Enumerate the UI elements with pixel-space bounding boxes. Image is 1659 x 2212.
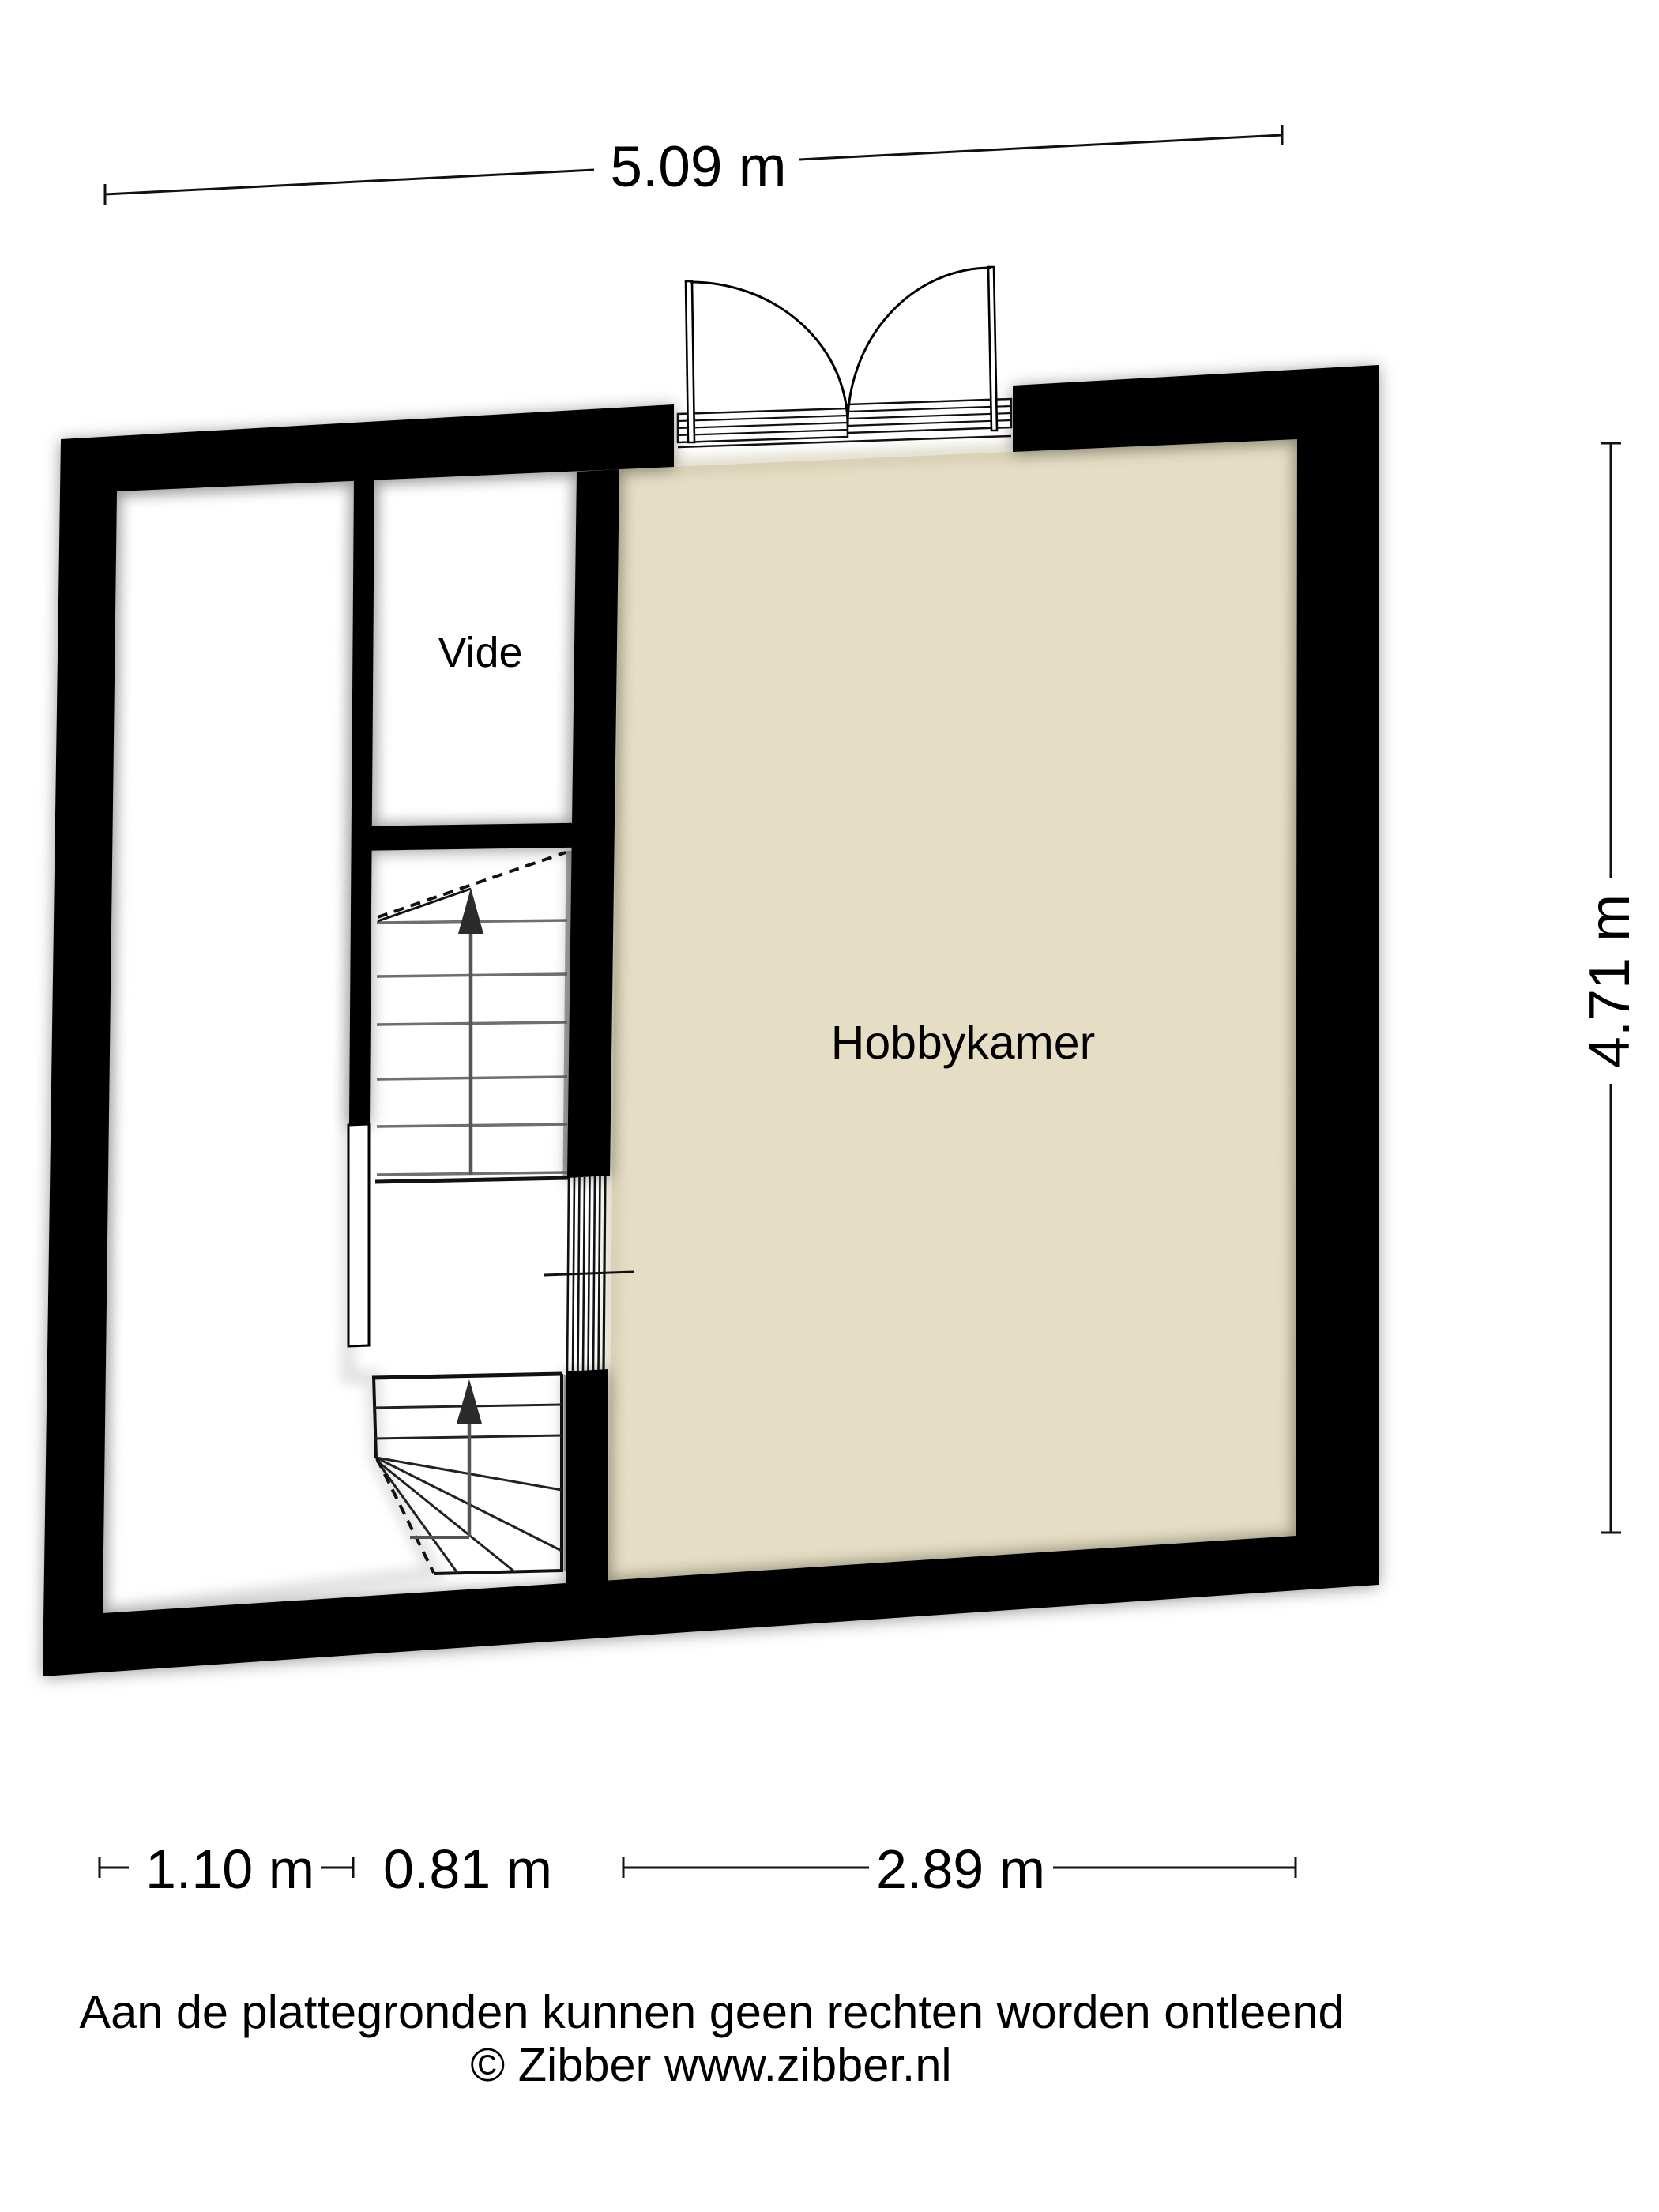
svg-text:1.10 m: 1.10 m <box>145 1838 314 1900</box>
svg-text:5.09 m: 5.09 m <box>610 135 786 199</box>
svg-text:© Zibber www.zibber.nl: © Zibber www.zibber.nl <box>470 2038 951 2091</box>
svg-text:Vide: Vide <box>438 629 522 676</box>
svg-text:Aan de plattegronden kunnen ge: Aan de plattegronden kunnen geen rechten… <box>79 1985 1344 2038</box>
svg-text:4.71 m: 4.71 m <box>1578 894 1642 1068</box>
svg-text:Hobbykamer: Hobbykamer <box>831 1017 1095 1069</box>
svg-text:2.89 m: 2.89 m <box>876 1838 1045 1900</box>
svg-text:0.81 m: 0.81 m <box>383 1838 552 1900</box>
